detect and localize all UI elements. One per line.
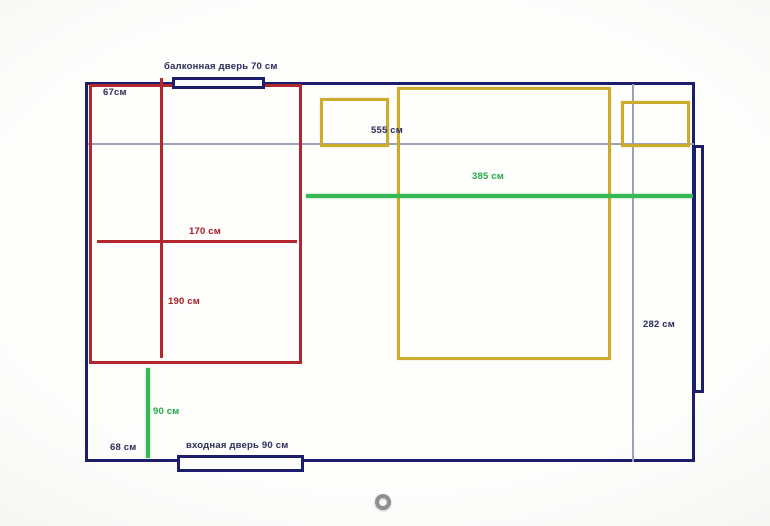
furniture-small-left-rect [320, 98, 389, 147]
label-282cm: 282 см [643, 319, 675, 330]
label-90cm: 90 см [153, 406, 180, 417]
red-vertical-line-190 [160, 78, 163, 358]
furniture-bed-rect [397, 87, 611, 360]
label-190cm: 190 см [168, 296, 200, 307]
entrance-door [177, 455, 304, 472]
entrance-door-label: входная дверь 90 см [186, 440, 288, 451]
window-right [693, 145, 704, 393]
balcony-door [172, 77, 265, 89]
label-555cm: 555 см [371, 125, 403, 136]
floor-plan-canvas: балконная дверь 70 см 67см 555 см 385 см… [0, 0, 770, 526]
balcony-door-label: балконная дверь 70 см [164, 61, 278, 72]
label-385cm: 385 см [472, 171, 504, 182]
green-width-line-385 [306, 194, 694, 198]
label-67cm: 67см [103, 87, 127, 98]
label-68cm: 68 см [110, 442, 137, 453]
red-zone-rect [89, 84, 302, 364]
red-horizontal-line-170 [97, 240, 297, 243]
label-170cm: 170 см [189, 226, 221, 237]
furniture-small-right-rect [621, 101, 690, 147]
page-marker-ring [375, 494, 391, 510]
green-door-line-90 [146, 368, 150, 458]
